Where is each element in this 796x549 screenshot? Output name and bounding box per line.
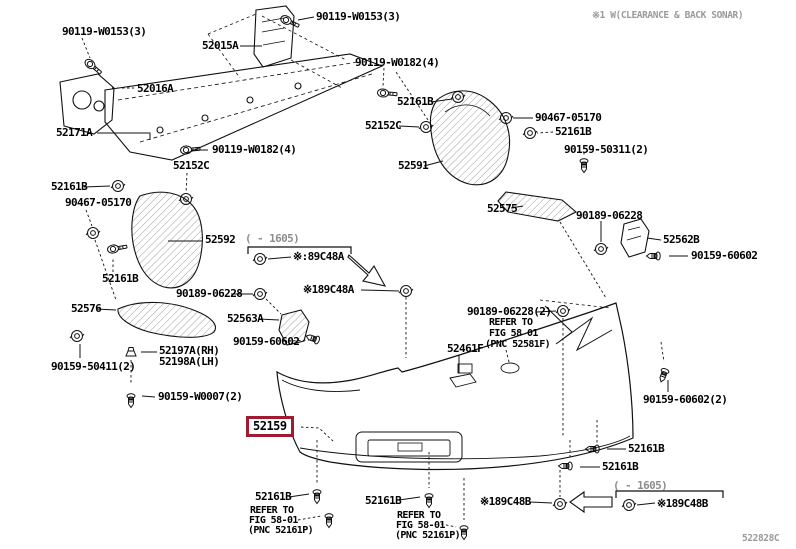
retainer-52576-shape: [118, 302, 216, 337]
bracket-52562b-shape: [621, 219, 649, 257]
part-number-label[interactable]: 52198A(LH): [159, 356, 219, 367]
clip-icon: [622, 500, 636, 511]
part-number-label[interactable]: 90159-W0007(2): [158, 391, 242, 402]
part-number-label[interactable]: 52161B: [397, 96, 433, 107]
refer-note: (PNC 52581F): [485, 339, 550, 350]
bolt-icon: [377, 89, 397, 99]
part-number-label[interactable]: 90119-W0153(3): [316, 11, 400, 22]
part-number-label[interactable]: 90159-60602: [691, 250, 757, 261]
part-number-label[interactable]: 90189-06228: [176, 288, 242, 299]
clip-icon: [399, 286, 413, 297]
part-number-label[interactable]: 52161B: [602, 461, 638, 472]
part-number-label[interactable]: ※189C48A: [303, 284, 354, 295]
side-support-left-52592-shape: [132, 192, 203, 288]
clip-icon: [253, 254, 267, 265]
part-number-label[interactable]: 52591: [398, 160, 428, 171]
part-number-label[interactable]: 52576: [71, 303, 101, 314]
clip-icon: [70, 331, 84, 342]
part-number-label[interactable]: 52592: [205, 234, 235, 245]
clip-icon: [594, 244, 608, 255]
side-support-right-52591-shape: [430, 91, 509, 185]
part-number-label[interactable]: 90159-60602(2): [643, 394, 727, 405]
part-number-label[interactable]: 90189-06228(2): [467, 306, 551, 317]
bolt-icon: [279, 14, 300, 29]
clip-icon: [86, 228, 100, 239]
grommet-icon: [126, 348, 136, 357]
part-number-label[interactable]: ※189C48B: [480, 496, 531, 507]
part-number-label[interactable]: 52562B: [663, 234, 699, 245]
bumper-cover-52159-shape: [277, 303, 633, 469]
part-number-label[interactable]: 52161B: [555, 126, 591, 137]
screw-icon: [580, 159, 588, 173]
screw-icon: [313, 490, 321, 504]
part-number-label[interactable]: 90159-60602: [233, 336, 299, 347]
part-number-label[interactable]: 52161B: [51, 181, 87, 192]
part-number-label[interactable]: 90467-05170: [65, 197, 131, 208]
refer-note: FIG 58 01: [489, 328, 538, 339]
date-range-note: ( - 1605): [613, 480, 667, 491]
part-number-label[interactable]: 52171A: [56, 127, 92, 138]
part-number-label[interactable]: 52152C: [365, 120, 401, 131]
part-number-label[interactable]: 52015A: [202, 40, 238, 51]
part-number-label[interactable]: 52161B: [102, 273, 138, 284]
part-number-label[interactable]: 52161B: [365, 495, 401, 506]
part-number-label[interactable]: 90119-W0182(4): [355, 57, 439, 68]
clip-icon: [556, 306, 570, 317]
clip-icon: [253, 289, 267, 300]
part-number-label[interactable]: 52563A: [227, 313, 263, 324]
refer-note: REFER TO: [489, 317, 532, 328]
clearance-back-sonar-note: ※1 W(CLEARANCE & BACK SONAR): [592, 10, 743, 21]
part-number-label[interactable]: 90159-50311(2): [564, 144, 648, 155]
refer-note: (PNC 52161P): [248, 525, 313, 536]
part-number-label[interactable]: 52461F: [447, 343, 483, 354]
date-range-note: ( - 1605): [245, 233, 299, 244]
diagram-code: 522828C: [742, 533, 779, 544]
part-number-label[interactable]: 52161B: [255, 491, 291, 502]
part-number-label[interactable]: 90467-05170: [535, 112, 601, 123]
bracket-52016a-shape: [60, 74, 114, 134]
part-number-label[interactable]: 52152C: [173, 160, 209, 171]
bolt-icon: [107, 243, 128, 254]
part-number-label[interactable]: 52575: [487, 203, 517, 214]
screw-icon: [559, 462, 573, 470]
screw-icon: [305, 332, 321, 344]
parts-diagram-viewport: 90119-W0153(3)90119-W0153(3)52015A52016A…: [0, 0, 796, 549]
screw-icon: [460, 526, 468, 540]
clip-icon: [553, 499, 567, 510]
part-number-label[interactable]: 90189-06228: [576, 210, 642, 221]
part-number-label[interactable]: 90159-50411(2): [51, 361, 135, 372]
part-number-label[interactable]: ※189C48B: [657, 498, 708, 509]
part-number-label[interactable]: 90119-W0182(4): [212, 144, 296, 155]
clip-icon: [111, 181, 125, 192]
screw-icon: [127, 394, 135, 408]
part-number-label[interactable]: 52161B: [628, 443, 664, 454]
screw-icon: [647, 252, 661, 260]
part-number-label[interactable]: ※:89C48A: [293, 251, 344, 262]
selected-part-callout[interactable]: 52159: [246, 416, 294, 437]
refer-note: (PNC 52161P): [395, 530, 460, 541]
arrow-left-icon: [570, 492, 612, 512]
bolt-icon: [83, 57, 103, 76]
part-number-label[interactable]: 90119-W0153(3): [62, 26, 146, 37]
clip-icon: [523, 128, 537, 139]
screw-icon: [425, 494, 433, 508]
screw-icon: [325, 514, 333, 528]
part-number-label[interactable]: 52016A: [137, 83, 173, 94]
arrow-down-right-icon: [348, 255, 385, 286]
